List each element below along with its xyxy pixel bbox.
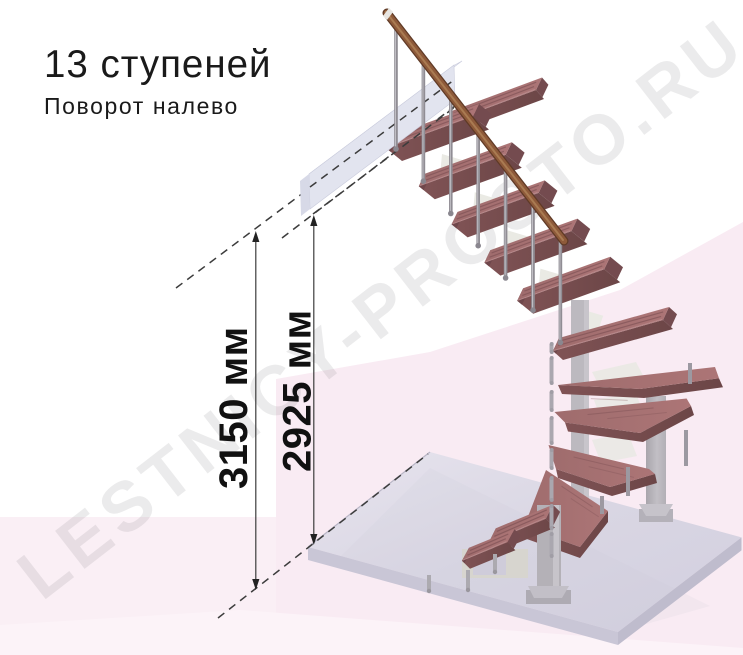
svg-text:3150 мм: 3150 мм bbox=[212, 326, 256, 489]
svg-text:2925 мм: 2925 мм bbox=[276, 309, 320, 472]
svg-text:Поворот налево: Поворот налево bbox=[44, 93, 239, 119]
svg-text:13 ступеней: 13 ступеней bbox=[44, 43, 272, 86]
